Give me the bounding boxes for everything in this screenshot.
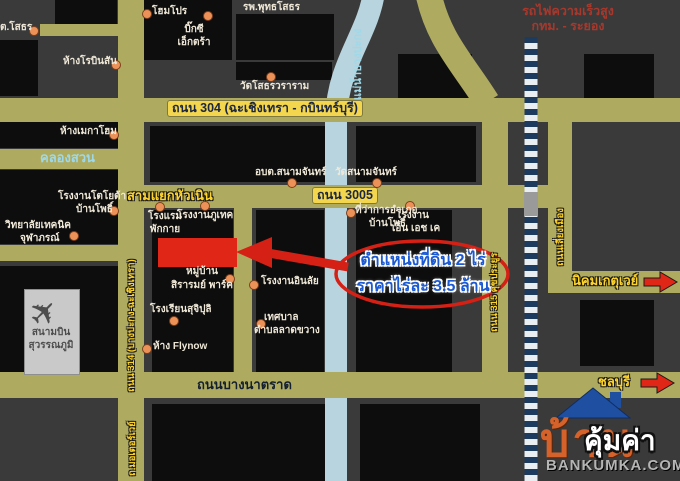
landmark-dot xyxy=(169,316,179,326)
logo-website-text: BANKUMKA.COM xyxy=(546,457,680,474)
landmark-dot xyxy=(203,11,213,21)
label-technic-line2: จุฬาภรณ์ xyxy=(20,233,60,245)
landmark-dot xyxy=(142,344,152,354)
label-wat-sanamchan: วัดสนามจันทร์ xyxy=(335,167,397,179)
road-bangna-trat xyxy=(0,372,680,398)
road-top-left-stub xyxy=(40,24,122,36)
label-airport-line1: สนามบิน xyxy=(24,327,78,339)
label-bigc-line2: เอ็กตร้า xyxy=(168,37,220,49)
label-robinson: ห้างโรบินสัน xyxy=(63,56,117,68)
building xyxy=(360,404,480,481)
label-hsr-line2: กทม. - ระยอง xyxy=(488,19,648,34)
label-chonburi: ชลบุรี xyxy=(598,374,630,390)
label-airport-line2: สุวรรณภูมิ xyxy=(24,340,78,352)
label-hsr-line1: รถไฟความเร็วสูง xyxy=(488,4,648,19)
label-megahome: ห้างเมกาโฮม xyxy=(60,126,117,138)
label-putech: โรงงานภูเทค xyxy=(177,210,233,222)
landmark-dot xyxy=(249,280,259,290)
label-road304: ถนน 304 (ฉะเชิงเทรา - กบินทร์บุรี) xyxy=(168,101,362,116)
annotation-line1: ตำแหน่งที่ดิน 2 ไร่ xyxy=(342,248,504,273)
landmark-dot xyxy=(372,178,382,188)
annotation-line2: ราคาไร่ละ 3.5 ล้าน xyxy=(338,274,508,299)
label-toyota-line2: บ้านโพธิ์ xyxy=(76,204,113,216)
label-bigc-line1: บิ๊กซี xyxy=(168,24,220,36)
label-bangna-trat: ถนนบางนาตราด xyxy=(197,377,292,393)
label-motorway: ถ.มอเตอร์เวย์ xyxy=(127,421,138,476)
building xyxy=(236,14,334,60)
label-hotel-line2: พักกาย xyxy=(143,224,187,236)
label-nhk-line1: โรงงาน xyxy=(396,210,429,222)
label-flynow: ห้าง Flynow xyxy=(153,341,207,353)
building xyxy=(256,210,324,372)
landmark-dot xyxy=(69,231,79,241)
label-technic-line1: วิทยาลัยเทคนิค xyxy=(5,220,71,232)
building xyxy=(236,62,332,80)
building xyxy=(152,404,332,481)
landmark-dot xyxy=(142,9,152,19)
road-314 xyxy=(118,0,144,481)
label-road3005: ถนน 3005 xyxy=(313,188,377,203)
label-samyaek: สามแยกหัวเนิน xyxy=(127,188,213,204)
land-plot-marker xyxy=(158,238,237,267)
label-road314: ถนน 314 (บางปะกง-ฉะเชิงเทรา) xyxy=(126,259,137,392)
label-nhk-line2: เอ็น เอช เค xyxy=(392,223,440,235)
building xyxy=(0,40,38,96)
label-sirarom-line2: สิรารมย์ พาร์ค xyxy=(162,280,242,292)
building xyxy=(584,54,654,100)
label-toyota-line1: โรงงานโตโยต้า xyxy=(58,191,126,203)
label-homepro: โฮมโปร xyxy=(152,6,187,18)
label-sujipuli: โรงเรียนสุจิปุลิ xyxy=(150,304,212,316)
label-bypass: ถนนเลี่ยงเมือง xyxy=(555,208,566,266)
label-khlongsuan: คลองสวน xyxy=(40,150,95,166)
label-tessaban-line2: ตำบลลาดขวาง xyxy=(254,325,320,337)
landmark-dot xyxy=(287,178,297,188)
label-sothon: ต.โสธร xyxy=(0,22,32,34)
map-canvas: ✈ โฮมโปร รพ.พุทธโสธร บิ๊กซี เอ็กตร้า ต.โ… xyxy=(0,0,680,481)
building xyxy=(580,300,654,366)
label-inlai: โรงงานอินลัย xyxy=(261,276,319,288)
label-obt-sanamchan: อบต.สนามจันทร์ xyxy=(255,167,326,179)
label-sirarom-line1: หมู่บ้าน xyxy=(172,266,232,278)
label-gateway: นิคมเกตุเวย์ xyxy=(572,273,638,289)
label-river: แม่น้ำบางปะกง xyxy=(352,29,365,101)
label-tessaban-line1: เทศบาล xyxy=(264,312,298,324)
road-technic-side xyxy=(0,245,120,261)
building xyxy=(398,54,472,100)
label-hospital: รพ.พุทธโสธร xyxy=(243,2,300,14)
label-wat-sothon: วัดโสธรวราราม xyxy=(240,81,309,93)
